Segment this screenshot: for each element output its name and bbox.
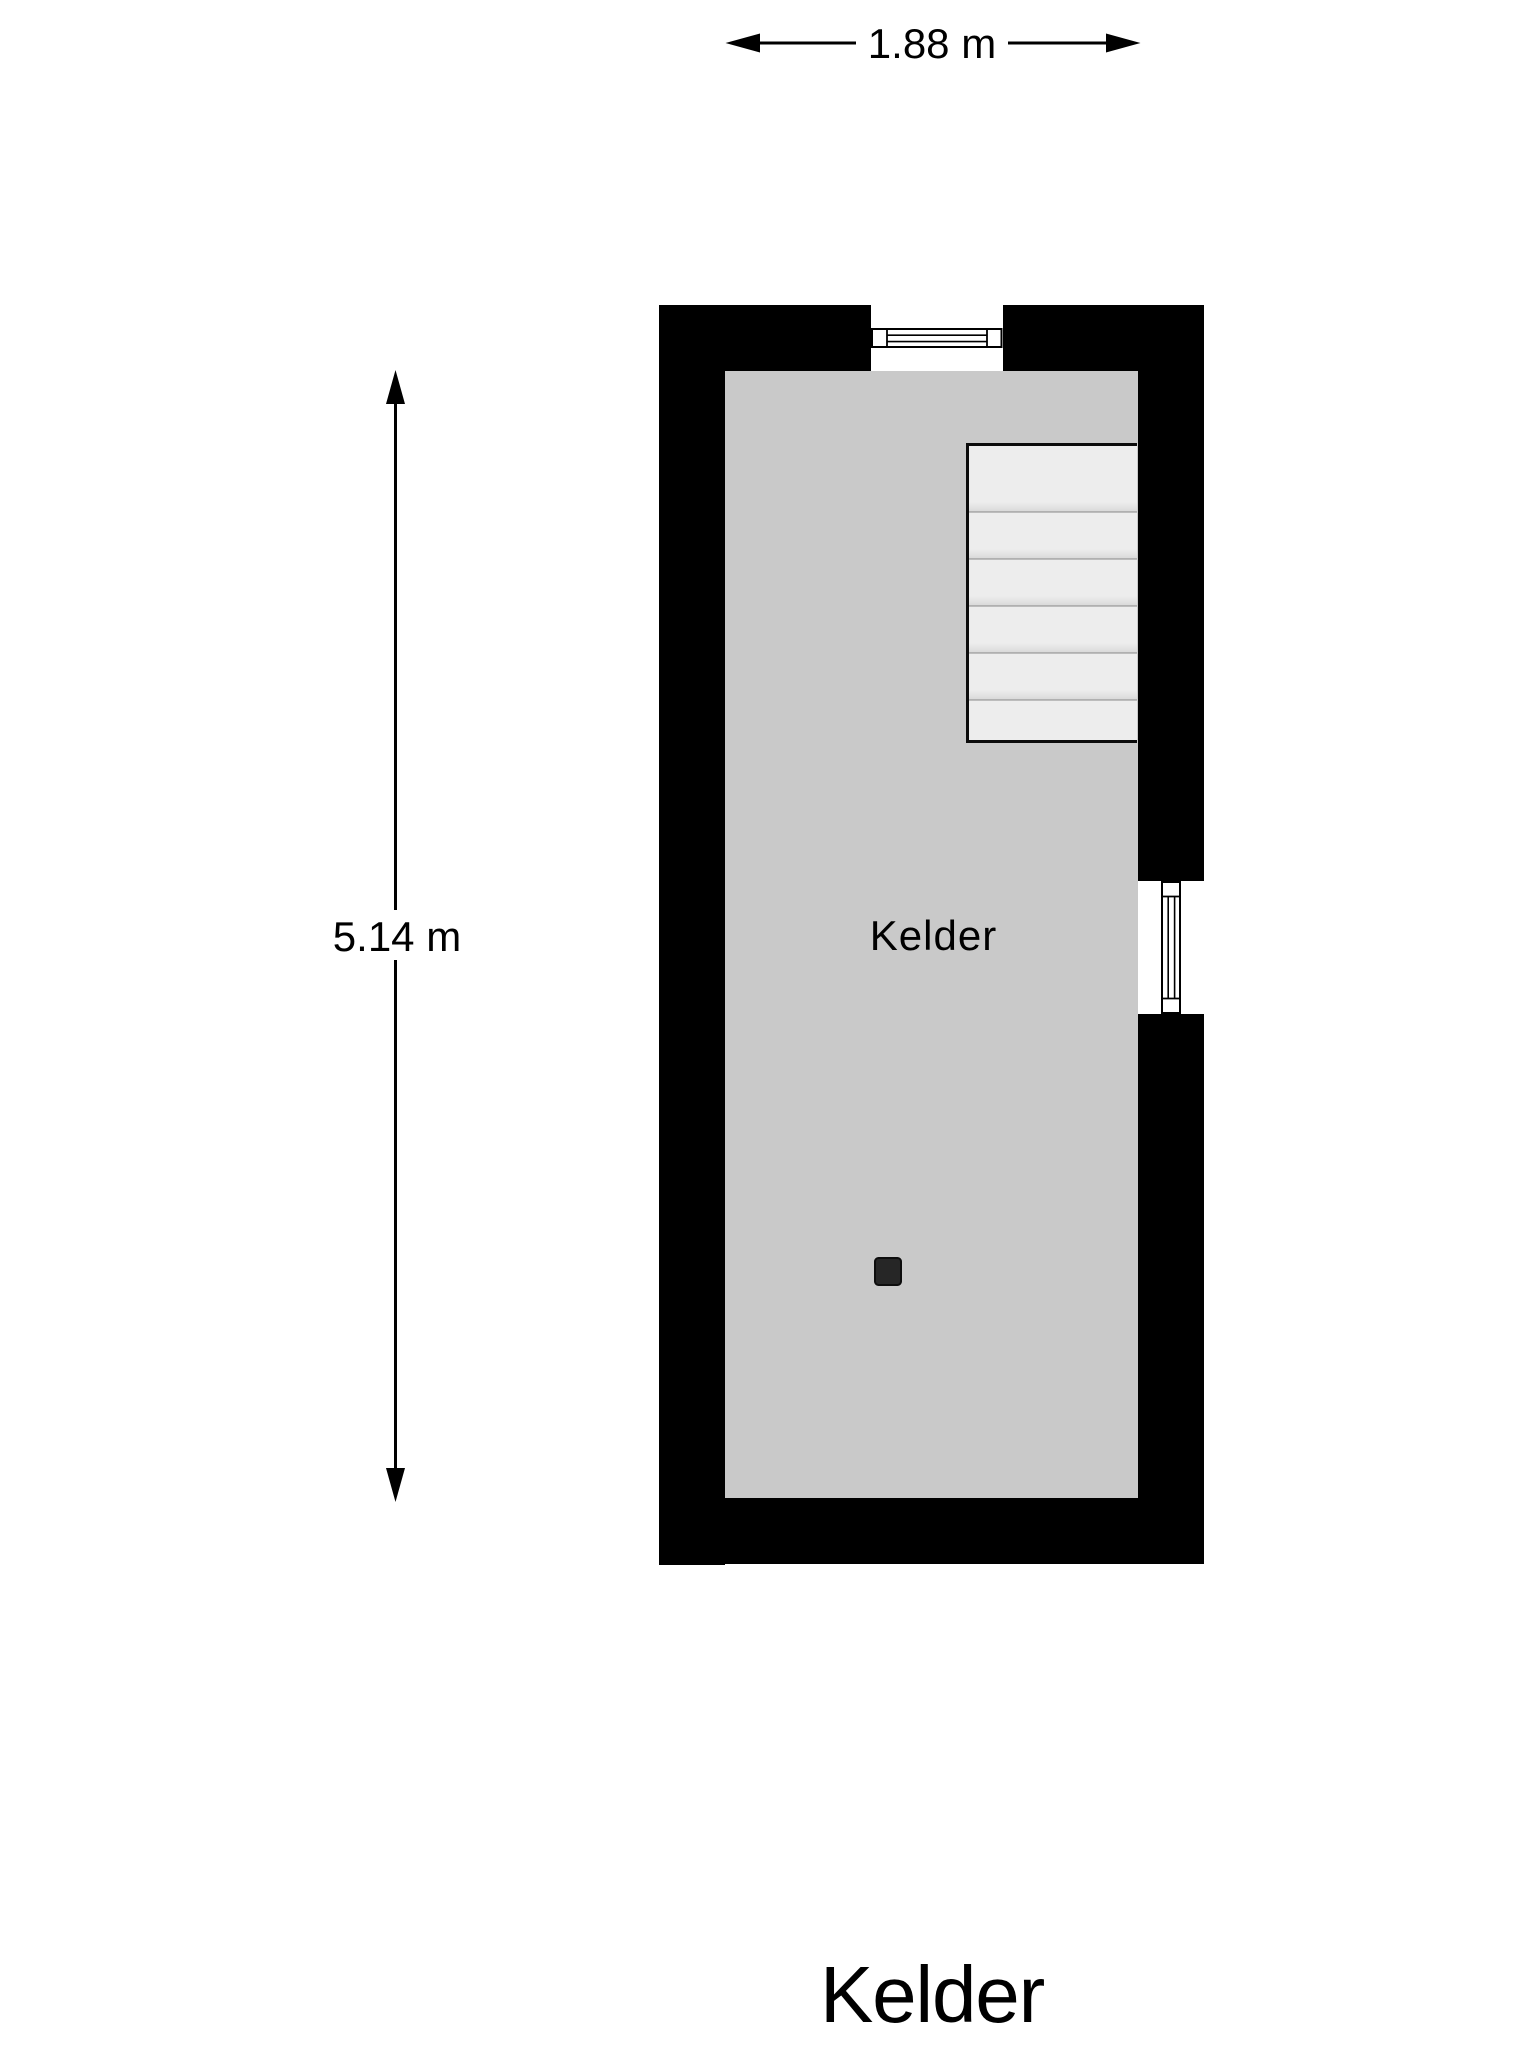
svg-text:Kelder: Kelder bbox=[870, 912, 997, 959]
svg-text:1.88 m: 1.88 m bbox=[868, 20, 996, 67]
svg-text:5.14 m: 5.14 m bbox=[333, 913, 461, 960]
svg-text:Kelder: Kelder bbox=[820, 1950, 1045, 2039]
